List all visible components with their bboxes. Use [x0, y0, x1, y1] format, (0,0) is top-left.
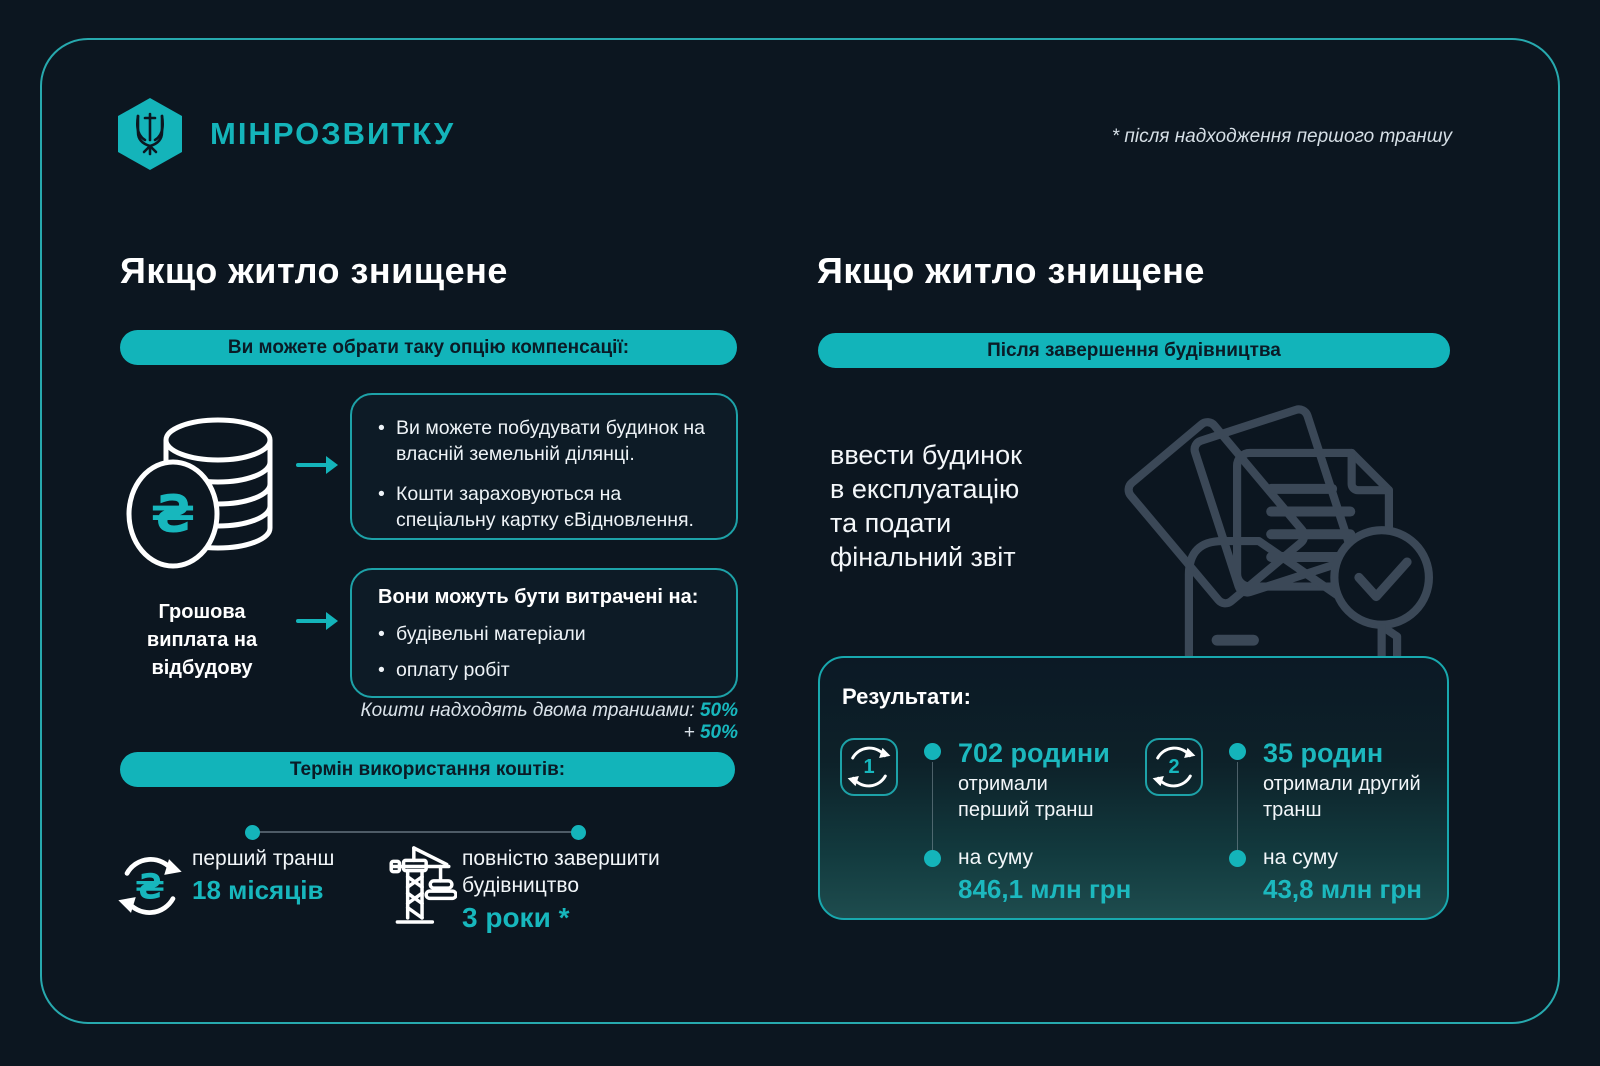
asterisk-footnote: * після надходження першого траншу: [1112, 126, 1452, 148]
timeline-label: повністю завершити будівництво: [462, 845, 677, 899]
body-line: фінальний звіт: [830, 540, 1022, 574]
compensation-option-pill: Ви можете обрати таку опцію компенсації:: [120, 330, 737, 365]
amount-value: 846,1 млн грн: [958, 874, 1131, 905]
bullet-dot: [924, 850, 941, 867]
body-line: в експлуатацію: [830, 472, 1022, 506]
coins-stack-icon: ₴: [118, 410, 283, 575]
after-construction-pill: Після завершення будівництва: [818, 333, 1450, 368]
result-sub: отримали другий транш: [1263, 771, 1453, 823]
payment-label: Грошова виплата на відбудову: [118, 598, 286, 682]
spend-bullet-list: будівельні матеріали оплату робіт: [378, 621, 710, 683]
tranches-note: Кошти надходять двома траншами: 50% + 50…: [350, 700, 738, 744]
arrow-right-icon: [296, 608, 340, 634]
term-pill: Термін використання коштів:: [120, 752, 735, 787]
amount-label: на суму: [1263, 845, 1422, 871]
spend-bullet: будівельні матеріали: [378, 621, 710, 647]
result-sub: отримали перший транш: [958, 771, 1128, 823]
results-panel: Результати: 1 702 родини отримали перший…: [818, 656, 1449, 920]
timeline-dot: [245, 825, 260, 840]
ministry-logo: МІНРОЗВИТКУ: [118, 98, 455, 170]
result-headline: 702 родини: [958, 738, 1128, 768]
result-amount-block: на суму 846,1 млн грн: [958, 845, 1131, 905]
timeline-item-first-tranche: перший транш 18 місяців: [192, 845, 392, 906]
result-number: 1: [842, 740, 896, 794]
timeline-label: перший транш: [192, 845, 392, 872]
result-number: 2: [1147, 740, 1201, 794]
result-amount-block: на суму 43,8 млн грн: [1263, 845, 1422, 905]
bullet-dot: [1229, 743, 1246, 760]
amount-value: 43,8 млн грн: [1263, 874, 1422, 905]
body-line: та подати: [830, 506, 1022, 540]
result-sub-line: перший транш: [958, 797, 1128, 823]
result-sub-line: отримали другий: [1263, 771, 1453, 797]
spend-box: Вони можуть бути витрачені на: будівельн…: [350, 568, 738, 698]
body-line: ввести будинок: [830, 438, 1022, 472]
result-texts: 702 родини отримали перший транш на суму…: [958, 738, 1128, 823]
hryvnia-symbol: ₴: [135, 868, 165, 908]
results-title: Результати:: [842, 684, 971, 710]
connector-line: [932, 762, 933, 850]
crane-icon: [383, 843, 457, 927]
commissioning-text: ввести будинок в експлуатацію та подати …: [830, 438, 1022, 574]
result-sub-line: транш: [1263, 797, 1453, 823]
result-texts: 35 родин отримали другий транш на суму 4…: [1263, 738, 1453, 823]
brand-name: МІНРОЗВИТКУ: [210, 116, 455, 152]
result-item-second-tranche: 2 35 родин отримали другий транш на суму…: [1145, 738, 1453, 823]
hryvnia-symbol: ₴: [151, 485, 196, 545]
left-column-title: Якщо житло знищене: [120, 250, 508, 292]
option-bullet-list: Ви можете побудувати будинок на власній …: [378, 415, 710, 533]
amount-label: на суму: [958, 845, 1131, 871]
trident-logo-icon: [118, 98, 182, 170]
tranche-percent-1: 50%: [700, 700, 738, 721]
result-item-first-tranche: 1 702 родини отримали перший транш на су…: [840, 738, 1128, 823]
option-box: Ви можете побудувати будинок на власній …: [350, 393, 738, 540]
timeline-value: 18 місяців: [192, 875, 392, 906]
tranche-percent-2: 50%: [700, 722, 738, 743]
timeline-dot: [571, 825, 586, 840]
refresh-hryvnia-icon: ₴: [112, 848, 188, 924]
connector-line: [1237, 762, 1238, 850]
bullet-dot: [1229, 850, 1246, 867]
documents-check-icon: [1058, 382, 1478, 682]
spend-box-title: Вони можуть бути витрачені на:: [378, 586, 710, 609]
timeline-line: [252, 831, 578, 833]
result-sub-line: отримали: [958, 771, 1128, 797]
bullet-dot: [924, 743, 941, 760]
arrow-right-icon: [296, 452, 340, 478]
spend-bullet: оплату робіт: [378, 657, 710, 683]
timeline-value: 3 роки *: [462, 902, 677, 934]
tranches-plus: +: [684, 722, 695, 743]
cycle-number-2-icon: 2: [1145, 738, 1203, 796]
option-bullet: Ви можете побудувати будинок на власній …: [378, 415, 710, 467]
option-bullet: Кошти зараховуються на спеціальну картку…: [378, 481, 710, 533]
timeline-item-finish-construction: повністю завершити будівництво 3 роки *: [462, 845, 677, 934]
infographic-page: { "colors": { "background": "#0c1620", "…: [0, 0, 1600, 1066]
cycle-number-1-icon: 1: [840, 738, 898, 796]
right-column-title: Якщо житло знищене: [817, 250, 1205, 292]
tranches-prefix: Кошти надходять двома траншами:: [360, 700, 694, 721]
result-headline: 35 родин: [1263, 738, 1453, 768]
